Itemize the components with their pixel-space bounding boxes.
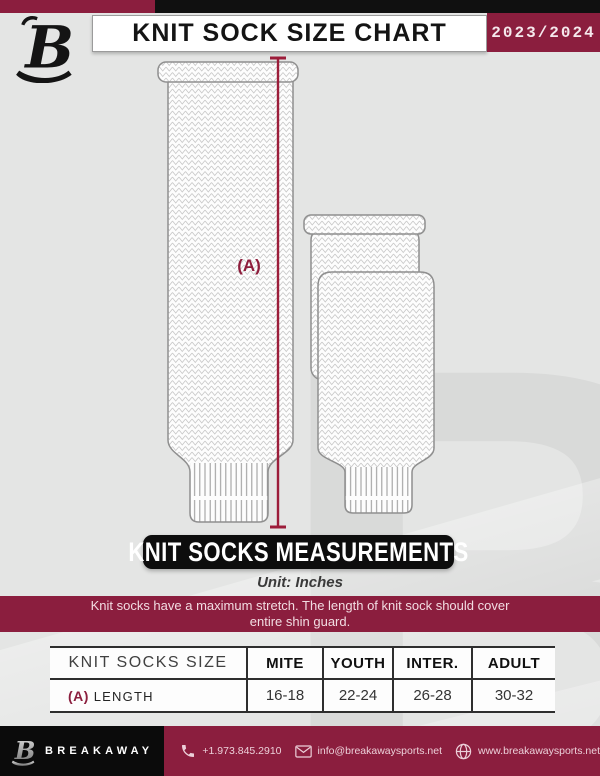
size-table-title-cell: KNIT SOCKS SIZE xyxy=(50,647,247,679)
unit-note: Unit: Inches xyxy=(0,574,600,591)
measurements-banner: KNIT SOCKS MEASUREMENTS xyxy=(143,535,454,569)
measurement-label-a: (A) xyxy=(237,256,261,275)
column-header-youth: YOUTH xyxy=(323,647,393,679)
title-bar: KNIT SOCK SIZE CHART xyxy=(92,15,487,52)
footer-brand-block: B BREAKAWAY xyxy=(0,726,164,776)
measurements-banner-label: KNIT SOCKS MEASUREMENTS xyxy=(128,537,468,568)
sock-small xyxy=(318,272,434,514)
breakaway-logo-icon: B xyxy=(12,11,84,83)
stretch-notice-banner: Knit socks have a maximum stretch. The l… xyxy=(0,596,600,632)
season-label: 2023/2024 xyxy=(491,24,595,42)
footer: B BREAKAWAY +1.973.845.2910 info@breakaw… xyxy=(0,726,600,776)
email-link[interactable]: info@breakawaysports.net xyxy=(295,745,442,758)
phone-link[interactable]: +1.973.845.2910 xyxy=(180,743,281,759)
value-inter: 26-28 xyxy=(393,679,472,712)
value-adult: 30-32 xyxy=(472,679,555,712)
column-header-inter: INTER. xyxy=(393,647,472,679)
breakaway-footer-logo-icon: B xyxy=(11,734,37,768)
notice-line-2: entire shin guard. xyxy=(250,614,350,630)
size-table: KNIT SOCKS SIZE MITE YOUTH INTER. ADULT … xyxy=(50,646,555,713)
top-strip-black xyxy=(155,0,600,13)
globe-icon xyxy=(455,743,472,760)
phone-icon xyxy=(180,743,196,759)
size-chart-page: B B KNIT SOCK SIZE CHART 2023/2024 xyxy=(0,0,600,776)
column-header-mite: MITE xyxy=(247,647,323,679)
svg-text:B: B xyxy=(14,736,36,765)
dimension-name: LENGTH xyxy=(94,689,154,704)
value-youth: 22-24 xyxy=(323,679,393,712)
website-link[interactable]: www.breakawaysports.net xyxy=(455,743,600,760)
envelope-icon xyxy=(295,745,312,758)
page-title: KNIT SOCK SIZE CHART xyxy=(132,19,446,48)
footer-contact-block: +1.973.845.2910 info@breakawaysports.net xyxy=(164,726,600,776)
notice-line-1: Knit socks have a maximum stretch. The l… xyxy=(91,598,510,614)
footer-brand-name: BREAKAWAY xyxy=(45,745,153,757)
season-badge: 2023/2024 xyxy=(487,13,600,52)
phone-number: +1.973.845.2910 xyxy=(202,745,281,757)
size-table-header-row: KNIT SOCKS SIZE MITE YOUTH INTER. ADULT xyxy=(50,647,555,679)
website-address: www.breakawaysports.net xyxy=(478,745,600,757)
email-address: info@breakawaysports.net xyxy=(318,745,442,757)
value-mite: 16-18 xyxy=(247,679,323,712)
svg-text:B: B xyxy=(23,14,74,82)
table-row-length: (A) LENGTH 16-18 22-24 26-28 30-32 xyxy=(50,679,555,712)
row-label-cell: (A) LENGTH xyxy=(50,679,247,712)
column-header-adult: ADULT xyxy=(472,647,555,679)
dimension-key: (A) xyxy=(68,688,89,704)
knit-sock-diagram: (A) xyxy=(140,50,460,535)
